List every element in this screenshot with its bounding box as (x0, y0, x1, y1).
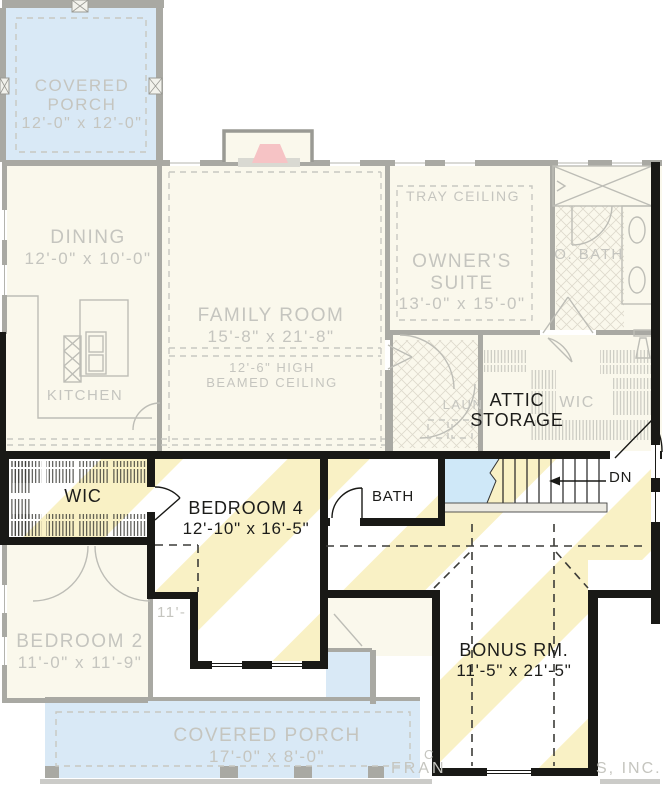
floor-plan-page: COVERED PORCH 12'-0" x 12'-0" DINING 12'… (0, 0, 664, 800)
floor-plan-graphics (0, 0, 664, 800)
